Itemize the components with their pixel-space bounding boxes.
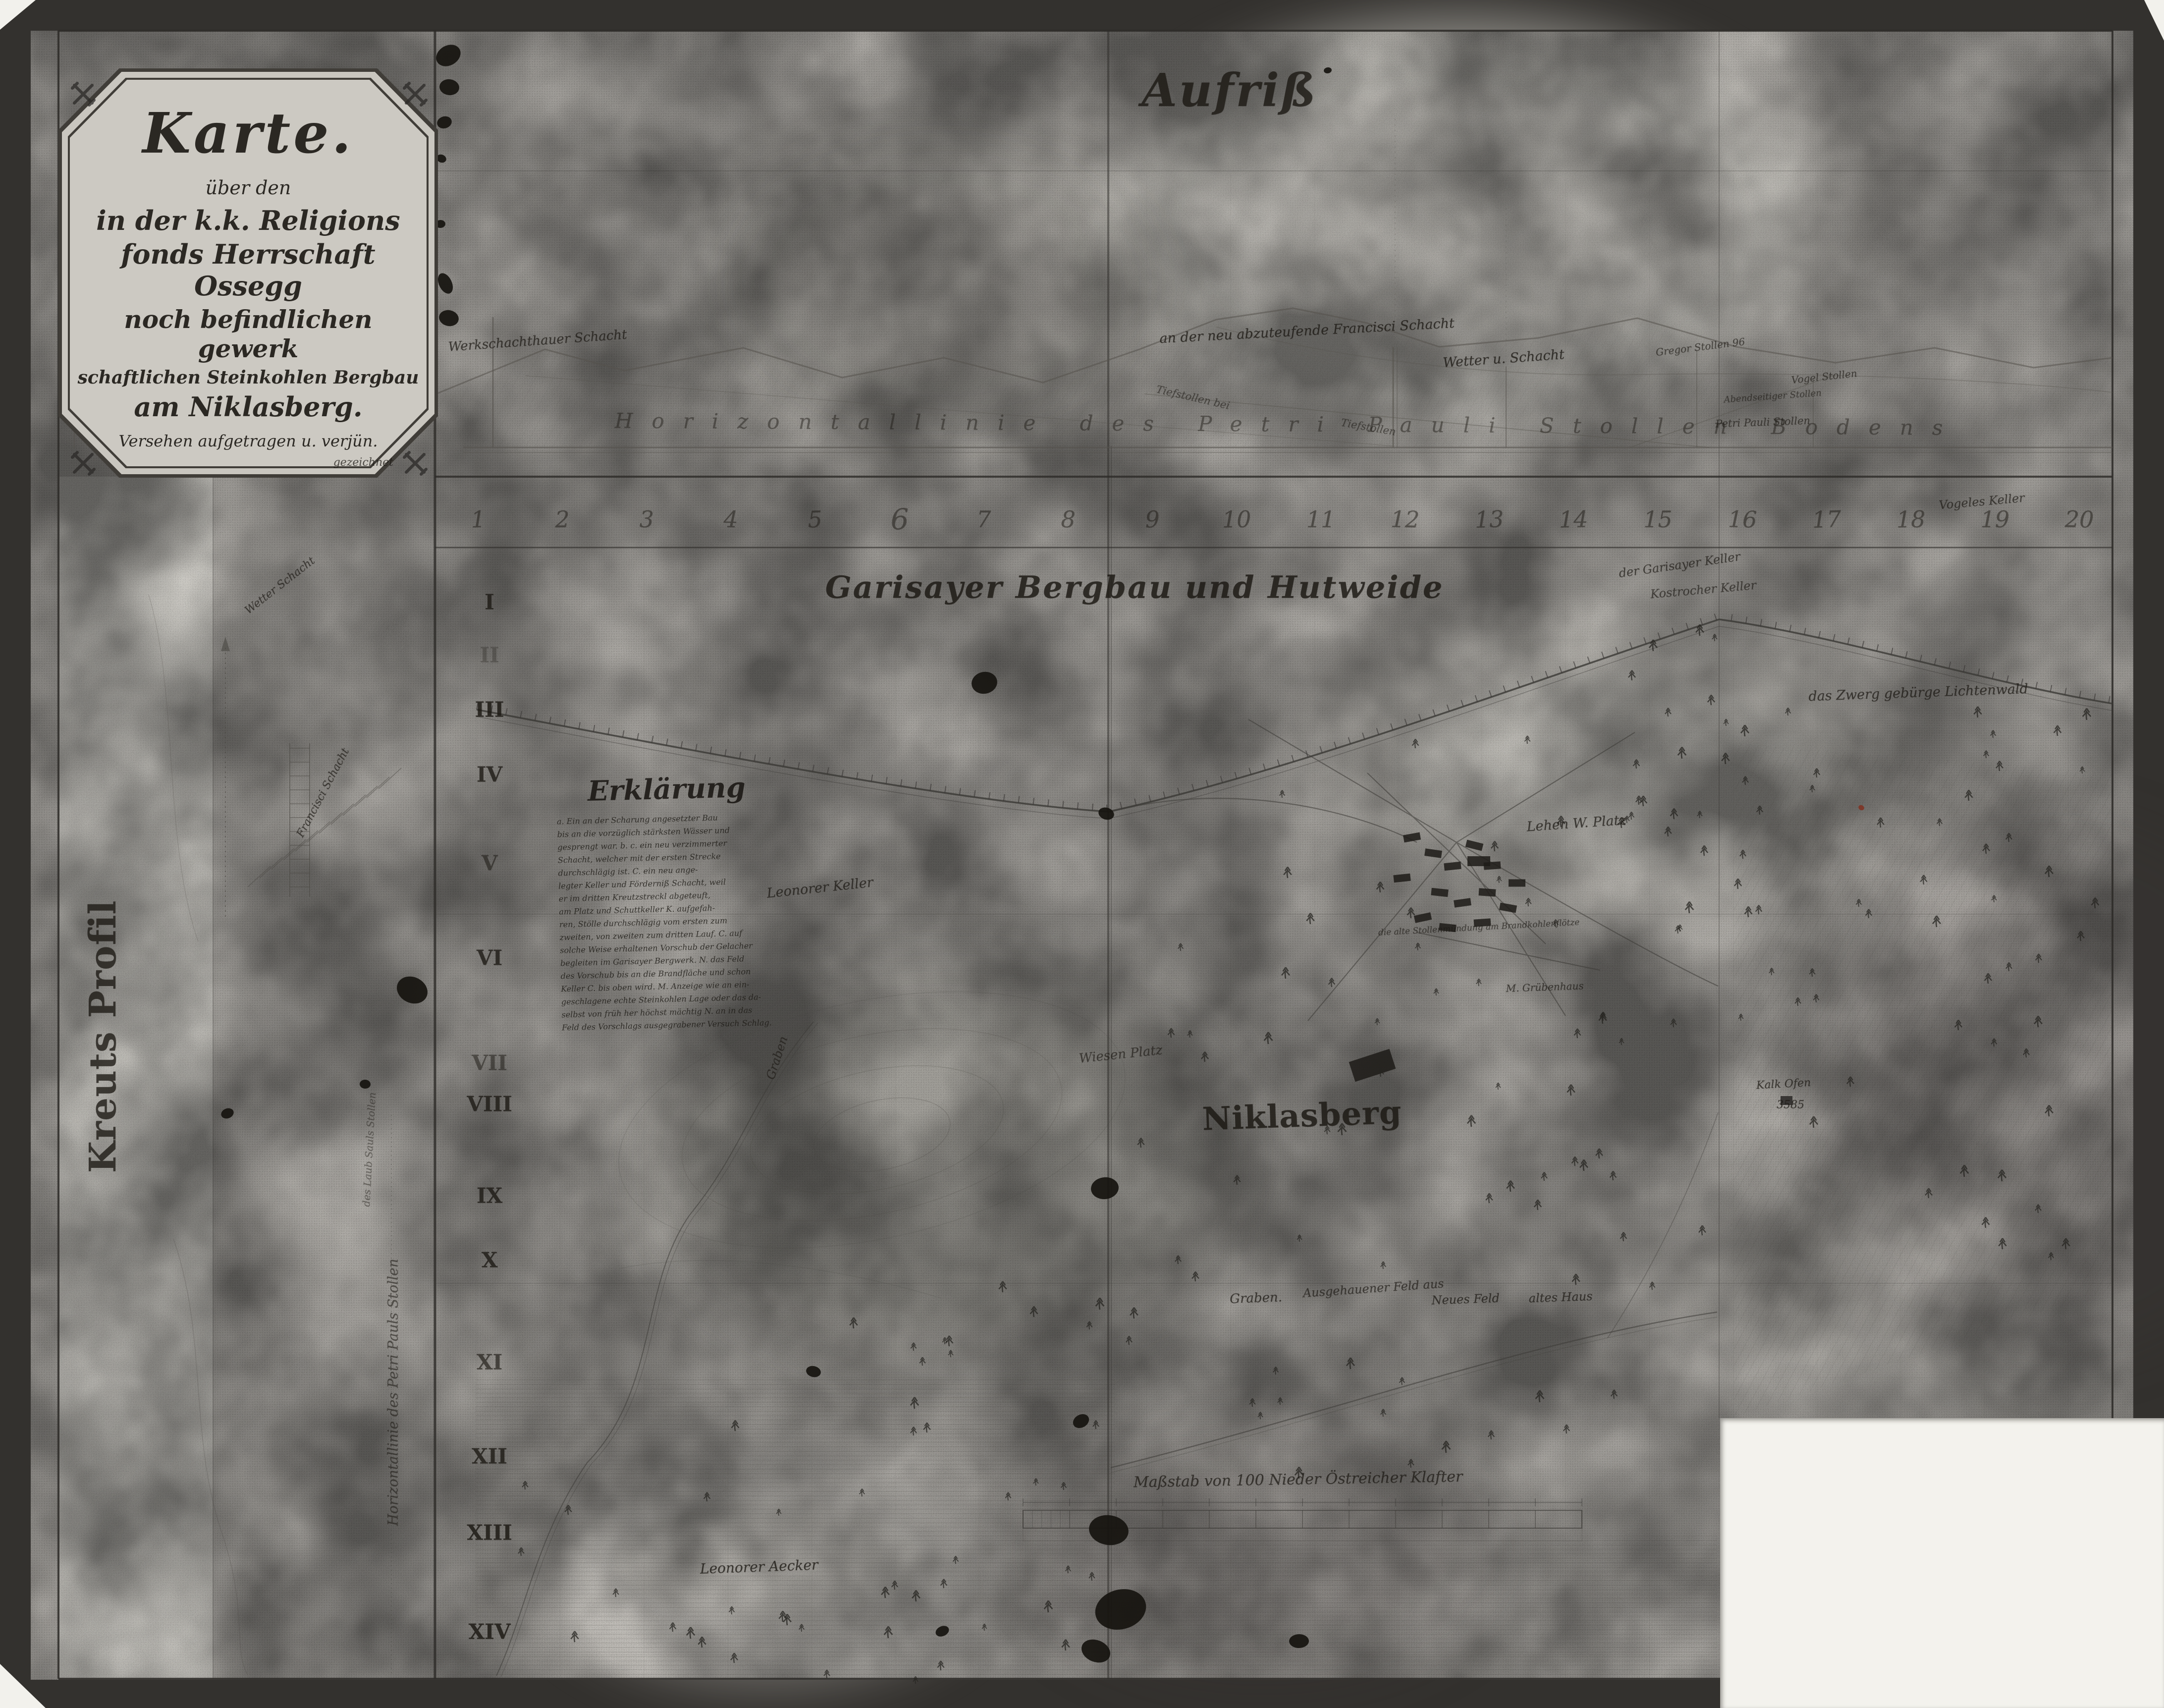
row-numeral-XIII: XIII — [467, 1521, 512, 1545]
title-line: Versehen aufgetragen u. verjün. — [118, 432, 378, 450]
row-numeral-III: III — [475, 698, 504, 722]
column-number-3: 3 — [640, 506, 654, 533]
map-label-3585: 3585 — [1777, 1099, 1804, 1111]
column-number-11: 11 — [1306, 506, 1336, 533]
column-number-18: 18 — [1896, 505, 1925, 533]
column-number-14: 14 — [1559, 505, 1588, 533]
column-number-15: 15 — [1643, 506, 1673, 533]
signature-caption: gezeichnet — [333, 456, 393, 469]
row-numeral-XIV: XIV — [469, 1620, 511, 1644]
row-numeral-IX: IX — [477, 1184, 502, 1208]
map-label-neues-feld: Neues Feld — [1431, 1291, 1500, 1308]
column-number-9: 9 — [1144, 506, 1160, 533]
row-numeral-XI: XI — [477, 1350, 502, 1375]
column-number-8: 8 — [1061, 506, 1076, 533]
row-numeral-XII: XII — [472, 1444, 507, 1469]
column-number-4: 4 — [723, 506, 738, 533]
row-numeral-I: I — [485, 590, 494, 614]
map-label-altes-haus: altes Haus — [1528, 1289, 1593, 1305]
scanned-map-page: Karte. über den in der k.k. Religions fo… — [0, 0, 2164, 1708]
legend-title: Erklärung — [556, 771, 777, 809]
column-number-12: 12 — [1390, 505, 1419, 533]
column-number-16: 16 — [1728, 505, 1757, 533]
title-line: noch befindlichen gewerk — [73, 305, 423, 363]
title-line: am Niklasberg. — [134, 391, 362, 423]
title-cartouche: Karte. über den in der k.k. Religions fo… — [58, 68, 438, 478]
legend-lines: a. Ein an der Scharung angesetzter Baubi… — [557, 810, 783, 1035]
legend-block: Erklärung a. Ein an der Scharung angeset… — [556, 771, 783, 1035]
column-number-6: 6 — [890, 502, 909, 537]
photo-edge — [0, 0, 36, 30]
crossed-hammers-icon — [69, 80, 97, 108]
elevation-section-title: Aufriß — [1141, 63, 1317, 117]
column-number-2: 2 — [555, 506, 570, 533]
title-line: in der k.k. Religions — [96, 205, 400, 236]
row-numeral-X: X — [482, 1248, 498, 1272]
map-label-niklasberg: Niklasberg — [1201, 1094, 1402, 1138]
map-heading: Garisayer Bergbau und Hutweide — [825, 569, 1444, 606]
row-numeral-VI: VI — [477, 946, 502, 970]
title-line: fonds Herrschaft Ossegg — [73, 238, 423, 302]
cartouche-text: Karte. über den in der k.k. Religions fo… — [73, 88, 423, 458]
map-title: Karte. — [143, 101, 354, 166]
column-number-10: 10 — [1222, 505, 1251, 533]
row-numeral-V: V — [482, 851, 498, 876]
column-number-1: 1 — [470, 506, 486, 533]
crossed-hammers-icon — [69, 449, 97, 477]
row-numeral-II: II — [480, 643, 499, 667]
column-number-7: 7 — [976, 506, 991, 533]
photo-edge — [2139, 0, 2164, 41]
column-number-17: 17 — [1811, 505, 1841, 533]
row-numeral-VIII: VIII — [467, 1092, 512, 1116]
column-number-13: 13 — [1474, 505, 1504, 533]
column-number-5: 5 — [808, 506, 823, 533]
map-label-graben: Graben. — [1230, 1290, 1283, 1307]
crossed-hammers-icon — [401, 80, 429, 108]
missing-corner-cutout — [1720, 1418, 2164, 1708]
crossed-hammers-icon — [401, 449, 429, 477]
profile-label-kreuts-profil: Kreuts Profil — [82, 900, 124, 1173]
profile-label-horizontallinie-des-petri-pauls-: Horizontallinie des Petri Pauls Stollen — [385, 1259, 401, 1526]
title-line: schaftlichen Steinkohlen Bergbau — [78, 367, 419, 388]
column-number-19: 19 — [1981, 506, 2010, 533]
column-number-20: 20 — [2064, 505, 2094, 533]
row-numeral-VII: VII — [472, 1051, 507, 1075]
title-line: über den — [206, 177, 291, 199]
row-numeral-IV: IV — [477, 763, 502, 787]
